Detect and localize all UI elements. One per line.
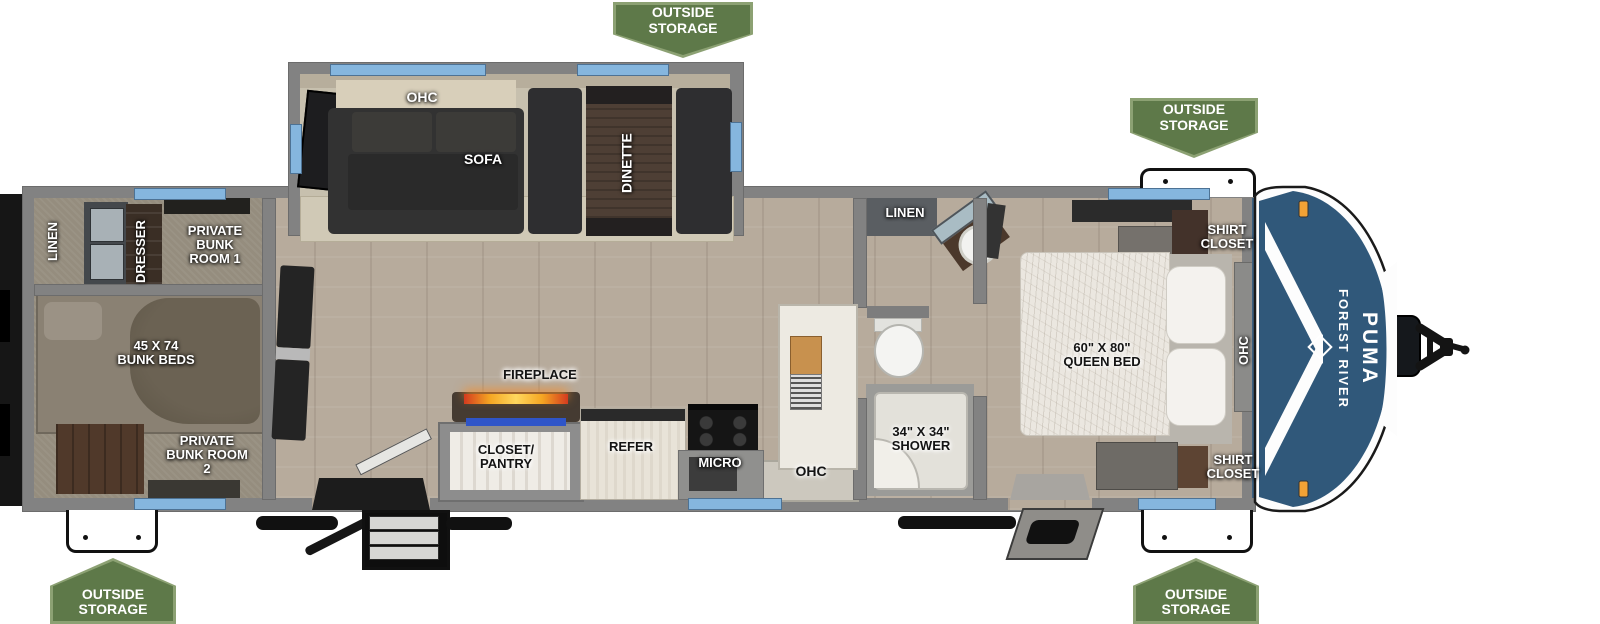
rear-bumper-bar-bottom <box>0 404 10 456</box>
label-bath-linen: LINEN <box>876 202 934 224</box>
sink-cutting-board <box>790 336 822 376</box>
sofa-cushion-right <box>436 112 516 152</box>
label-rear-linen: LINEN <box>42 212 64 272</box>
bedroom-entry-landing <box>1010 474 1090 500</box>
bed-pillow-bottom <box>1166 348 1226 426</box>
slideout-window-right-side <box>730 122 742 172</box>
label-closet-pantry: CLOSET/ PANTRY <box>466 440 546 474</box>
rear-bumper-bar-top <box>0 290 10 342</box>
awning-rail-mid <box>446 517 512 530</box>
bed-pillow-top <box>1166 266 1226 344</box>
awning-rail-front <box>898 516 1016 529</box>
badge-outside-storage-top-right: OUTSIDE STORAGE <box>1130 98 1258 158</box>
bunk-pillow <box>44 302 102 340</box>
badge-label: OUTSIDE STORAGE <box>50 582 176 622</box>
window-rear-bottom <box>134 498 226 510</box>
front-cap: FOREST RIVER PUMA <box>1253 184 1403 514</box>
floorplan: FOREST RIVER PUMA OHC SOFA DINETTE LINEN… <box>0 0 1600 624</box>
dinette-bench-left <box>528 88 582 234</box>
label-kitchen-ohc: OHC <box>786 462 836 482</box>
label-shirt-closet-top: SHIRT CLOSET <box>1196 218 1258 256</box>
dinette-bench-right <box>676 88 732 234</box>
bunk-room-2-step <box>148 480 240 498</box>
entry-steps <box>362 510 450 570</box>
label-bunk-room-2: PRIVATE BUNK ROOM 2 <box>166 428 248 482</box>
label-bunk-room-1: PRIVATE BUNK ROOM 1 <box>180 218 250 272</box>
jack-knob <box>1461 346 1470 355</box>
label-queen-bed: 60" X 80" QUEEN BED <box>1050 334 1154 376</box>
bath-wall-right-upper <box>973 198 987 304</box>
window-kitchen-bottom <box>688 498 782 510</box>
slideout-window-left-side <box>290 124 302 174</box>
label-shirt-closet-bottom: SHIRT CLOSET <box>1202 448 1264 486</box>
label-dresser: DRESSER <box>130 216 152 288</box>
brand-maker: FOREST RIVER <box>1331 220 1351 478</box>
label-micro: MICRO <box>688 452 752 474</box>
label-fireplace: FIREPLACE <box>488 366 592 384</box>
label-bedroom-ohc: OHC <box>1234 326 1254 376</box>
bedroom-fold-step <box>1006 508 1105 560</box>
label-refer: REFER <box>598 438 664 456</box>
window-bedroom-bottom <box>1138 498 1216 510</box>
fireplace-accent <box>466 418 566 426</box>
entry-step-well <box>312 478 430 510</box>
bedroom-dresser-bottom <box>1096 442 1178 490</box>
badge-label: OUTSIDE STORAGE <box>1133 582 1259 622</box>
storage-door-outline-rear-bottom <box>66 510 158 553</box>
brand-model: PUMA <box>1353 288 1381 410</box>
slideout-window-right-top <box>577 64 669 76</box>
label-slideout-ohc: OHC <box>392 88 452 108</box>
rear-bumper <box>0 194 22 506</box>
badge-label: OUTSIDE STORAGE <box>1130 100 1258 136</box>
label-bunk-beds: 45 X 74 BUNK BEDS <box>116 334 196 372</box>
rear-divider-wall <box>34 284 270 296</box>
bunk-room-1-overhead <box>164 198 250 214</box>
storage-door-outline-front-bottom <box>1141 510 1253 553</box>
label-dinette: DINETTE <box>614 116 640 210</box>
toilet-bowl <box>874 324 924 378</box>
bath-wall-right-lower <box>973 396 987 500</box>
window-bedroom-top <box>1108 188 1210 200</box>
kitchen-counter <box>778 304 858 470</box>
clearance-light-top <box>1299 201 1308 217</box>
label-sofa: SOFA <box>448 150 518 170</box>
slideout-window-left-top <box>330 64 486 76</box>
sink-drying-rack <box>790 374 822 410</box>
range-cooktop <box>688 410 758 450</box>
badge-outside-storage-bottom-right: OUTSIDE STORAGE <box>1133 558 1259 624</box>
bath-wall-left-upper <box>853 198 867 308</box>
awning-rail-left <box>256 516 338 530</box>
sofa-cushion-left <box>352 112 432 152</box>
label-shower: 34" X 34" SHOWER <box>878 418 964 460</box>
badge-outside-storage-top-center: OUTSIDE STORAGE <box>613 2 753 58</box>
window-rear-top <box>134 188 226 200</box>
badge-outside-storage-bottom-left: OUTSIDE STORAGE <box>50 558 176 624</box>
linen-cabinet-rear <box>84 202 128 284</box>
clearance-light-bottom <box>1299 481 1308 497</box>
toilet-half-wall <box>867 306 929 318</box>
badge-label: OUTSIDE STORAGE <box>613 4 753 38</box>
bunk-room-2-cabinet <box>56 424 144 494</box>
bunkhouse-partition-wall <box>262 198 276 500</box>
